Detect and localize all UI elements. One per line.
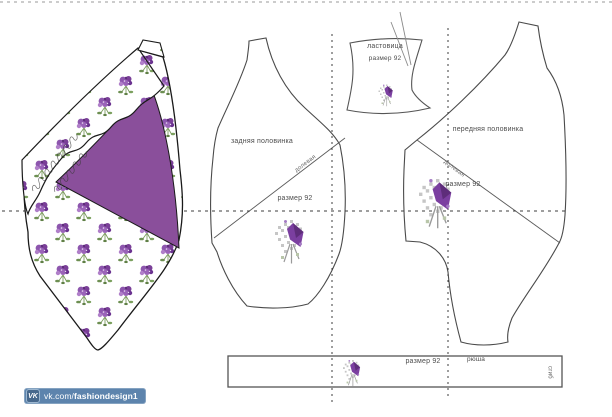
vk-logo-icon: VK [26, 389, 40, 403]
pattern-sheet: ластовица размер 92 задняя половинка раз… [0, 0, 612, 417]
front-piece-size-label: размер 92 [436, 181, 490, 189]
front-piece-label: передняя половинка [444, 126, 532, 134]
back-piece-size-label: размер 92 [268, 195, 322, 203]
back-piece-label: задняя половинка [222, 138, 302, 146]
strip-fold-label: сгиб [546, 360, 553, 384]
vk-watermark-badge[interactable]: VK vk.com/fashiondesign1 [24, 388, 146, 404]
watermark-url-name: fashiondesign1 [74, 391, 138, 401]
pattern-sheet-graphic [0, 0, 612, 417]
gusset-size-label: размер 92 [343, 55, 427, 62]
strip-ruffle-label: рюша [458, 356, 494, 363]
watermark-url-prefix: vk.com/ [44, 391, 74, 401]
strip-size-label: размер 92 [398, 358, 448, 366]
ruffle-strip-outline [228, 356, 562, 387]
gusset-label: ластовица [343, 43, 427, 51]
back-piece-outline [211, 38, 346, 308]
swimsuit-illustration [22, 40, 183, 350]
watermark-url: vk.com/fashiondesign1 [44, 391, 138, 401]
